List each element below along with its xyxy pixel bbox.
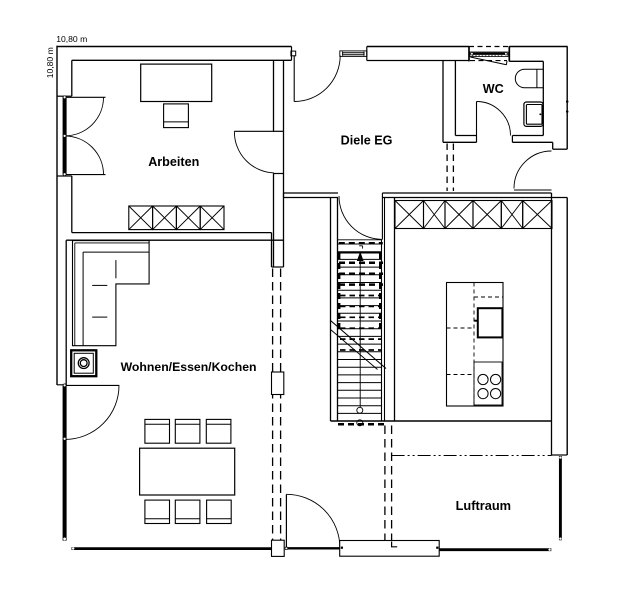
svg-text:Luftraum: Luftraum — [456, 498, 511, 513]
svg-text:10,80 m: 10,80 m — [56, 34, 87, 44]
svg-text:Wohnen/Essen/Kochen: Wohnen/Essen/Kochen — [121, 360, 257, 374]
svg-text:WC: WC — [483, 82, 504, 96]
svg-text:Diele EG: Diele EG — [341, 133, 393, 147]
svg-text:10,80 m: 10,80 m — [45, 47, 55, 78]
svg-text:Arbeiten: Arbeiten — [148, 155, 199, 169]
